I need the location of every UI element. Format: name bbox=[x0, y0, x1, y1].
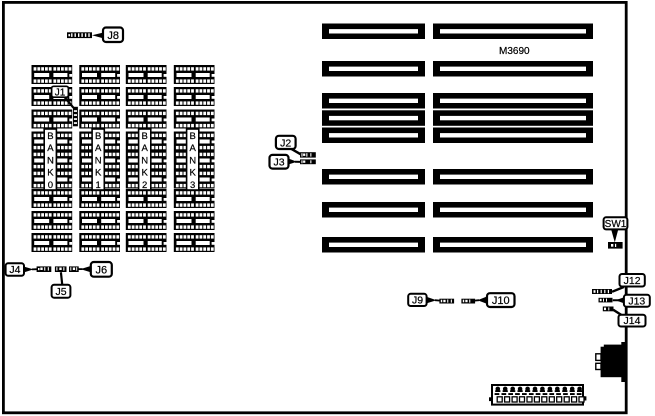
svg-text:1: 1 bbox=[96, 180, 101, 191]
svg-text:B: B bbox=[95, 131, 101, 142]
svg-text:J14: J14 bbox=[624, 315, 641, 327]
svg-text:J13: J13 bbox=[628, 295, 645, 307]
svg-text:B: B bbox=[142, 131, 148, 142]
svg-text:K: K bbox=[190, 168, 197, 179]
svg-text:0: 0 bbox=[48, 180, 53, 191]
svg-text:A: A bbox=[47, 143, 54, 154]
svg-text:J1: J1 bbox=[55, 87, 66, 98]
svg-text:K: K bbox=[95, 168, 102, 179]
svg-text:J8: J8 bbox=[107, 30, 119, 42]
svg-text:2: 2 bbox=[142, 180, 147, 191]
svg-text:A: A bbox=[190, 143, 197, 154]
svg-text:B: B bbox=[190, 131, 196, 142]
svg-text:N: N bbox=[95, 155, 102, 166]
svg-text:N: N bbox=[47, 155, 54, 166]
svg-text:A: A bbox=[95, 143, 102, 154]
svg-text:J9: J9 bbox=[412, 295, 423, 307]
svg-text:J3: J3 bbox=[273, 157, 284, 169]
svg-text:J2: J2 bbox=[280, 137, 291, 149]
svg-text:SW1: SW1 bbox=[605, 219, 627, 230]
svg-text:M3690: M3690 bbox=[499, 46, 530, 57]
svg-text:N: N bbox=[141, 155, 148, 166]
svg-text:J6: J6 bbox=[95, 265, 107, 277]
svg-text:N: N bbox=[189, 155, 196, 166]
svg-text:B: B bbox=[47, 131, 53, 142]
svg-text:J10: J10 bbox=[492, 295, 510, 307]
svg-text:3: 3 bbox=[190, 180, 195, 191]
svg-text:K: K bbox=[142, 168, 149, 179]
svg-text:J12: J12 bbox=[624, 275, 641, 287]
svg-text:K: K bbox=[47, 168, 54, 179]
svg-text:J5: J5 bbox=[55, 286, 66, 298]
svg-text:J4: J4 bbox=[9, 264, 20, 276]
svg-text:A: A bbox=[142, 143, 149, 154]
